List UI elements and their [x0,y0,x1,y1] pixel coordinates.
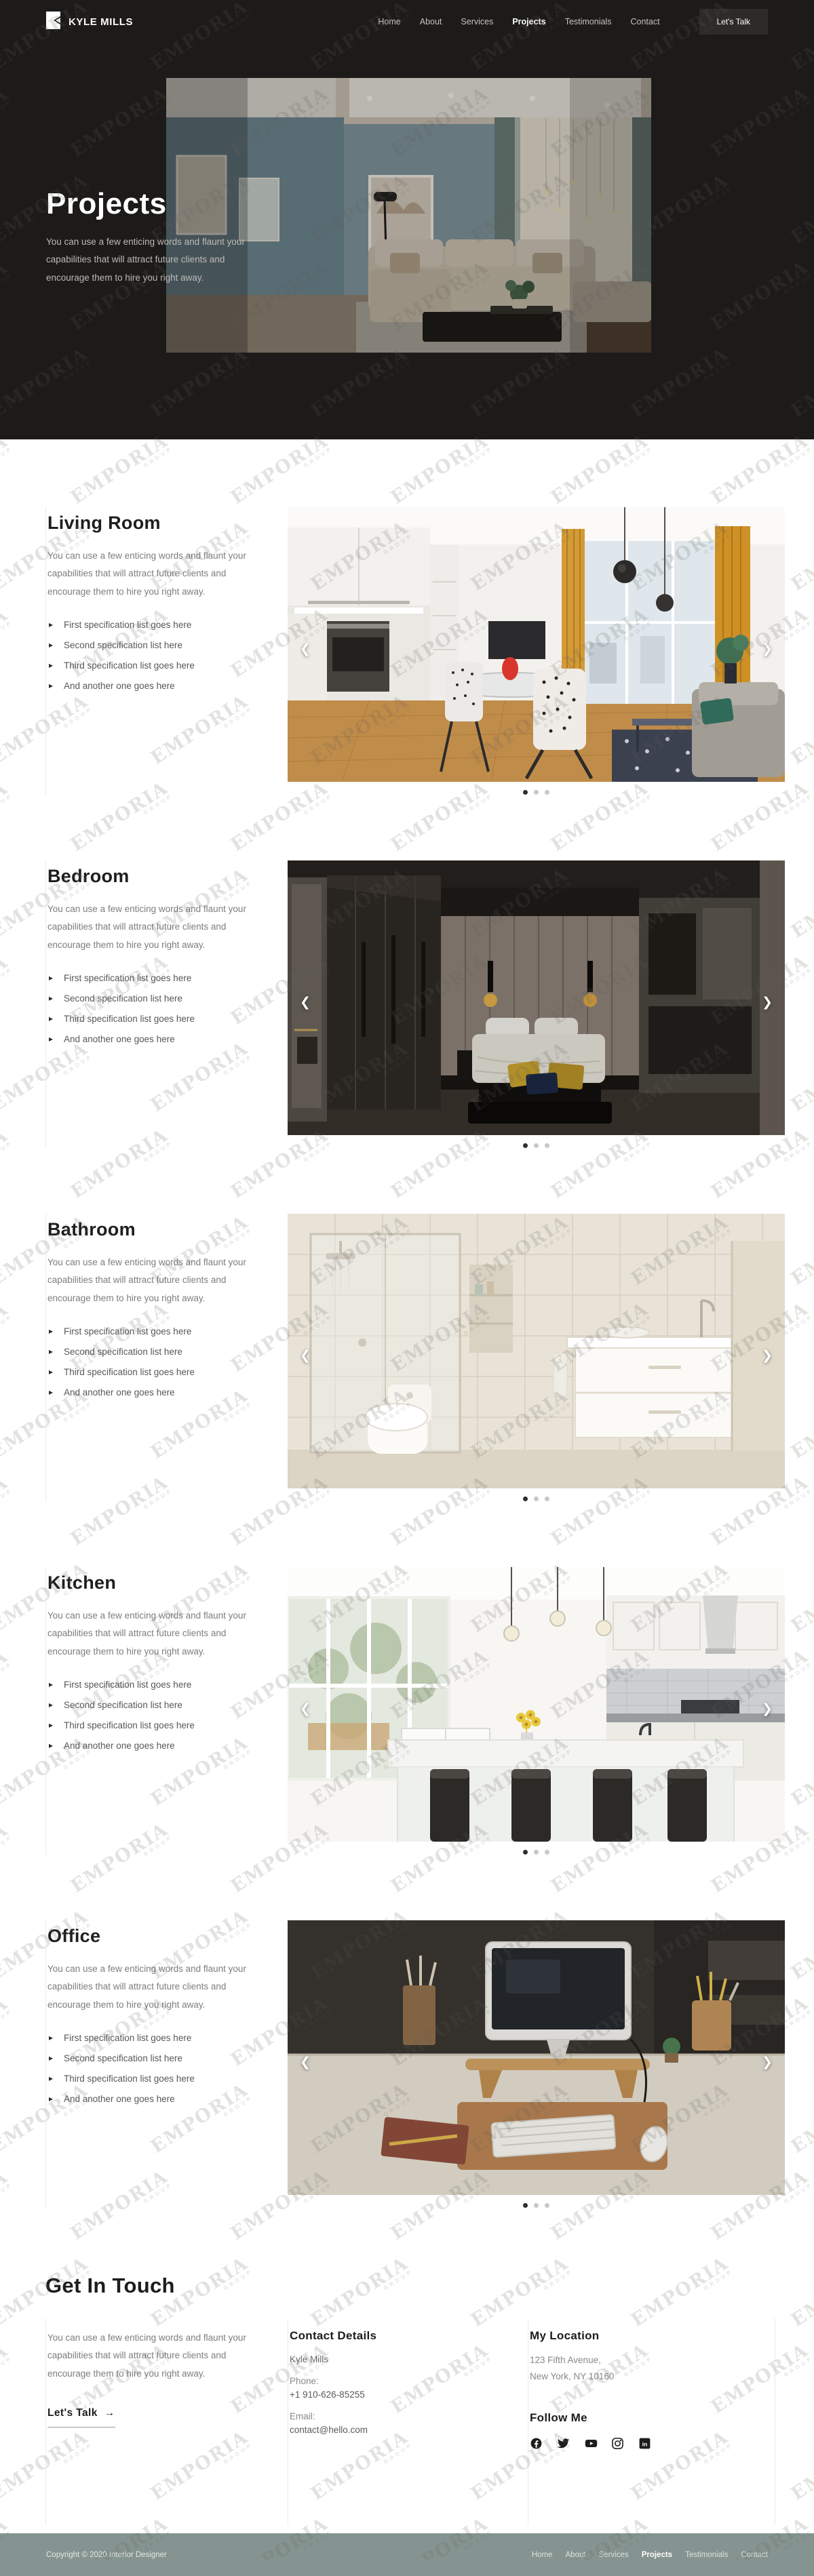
section-description: You can use a few enticing words and fla… [47,1960,262,2014]
spec-item: First specification list goes here [47,2033,262,2043]
carousel-dot[interactable] [534,1850,539,1855]
carousel-dot[interactable] [523,790,528,795]
project-info: Office You can use a few enticing words … [45,1920,288,2208]
living-room-carousel: ❮ ❯ [288,507,785,795]
phone-number[interactable]: +1 910-626-85255 [290,2390,507,2400]
nav-contact[interactable]: Contact [630,17,659,26]
carousel-dots [288,2203,785,2208]
lets-talk-button[interactable]: Let's Talk [699,9,768,35]
contact-name: Kyle Mills [290,2354,507,2364]
project-info: Living Room You can use a few enticing w… [45,507,288,795]
spec-item: Third specification list goes here [47,1367,262,1377]
bedroom-photo [288,860,785,1135]
instagram-icon[interactable] [611,2437,624,2450]
contact-intro-column: You can use a few enticing words and fla… [45,2318,288,2525]
bathroom-photo [288,1214,785,1488]
site-footer: Copyright © 2020 Interior Designer Home … [0,2533,814,2576]
carousel-dot[interactable] [523,1497,528,1501]
spec-item: Second specification list here [47,993,262,1004]
nav-testimonials[interactable]: Testimonials [565,17,612,26]
contact-heading: Get In Touch [45,2274,775,2298]
office-carousel: ❮ ❯ [288,1920,785,2208]
footer-nav-projects[interactable]: Projects [642,2551,672,2559]
carousel-dot[interactable] [534,1143,539,1148]
bathroom-carousel: ❮ ❯ [288,1214,785,1501]
carousel-dot[interactable] [545,2203,549,2208]
hero-section: Projects You can use a few enticing word… [0,43,814,439]
main-nav: Home About Services Projects Testimonial… [378,9,768,35]
spec-list: First specification list goes here Secon… [47,973,262,1044]
carousel-dot[interactable] [545,1143,549,1148]
copyright-text: Copyright © 2020 Interior Designer [46,2551,167,2559]
carousel-dots [288,1497,785,1501]
carousel-prev-button[interactable]: ❮ [297,993,313,1012]
spec-item: And another one goes here [47,1034,262,1044]
carousel-dot[interactable] [545,1497,549,1501]
section-title: Living Room [47,513,262,534]
carousel-prev-button[interactable]: ❮ [297,2053,313,2072]
twitter-icon[interactable] [557,2437,570,2450]
nav-services[interactable]: Services [461,17,493,26]
project-info: Bedroom You can use a few enticing words… [45,860,288,1148]
email-label: Email: [290,2411,507,2421]
carousel-next-button[interactable]: ❯ [759,1347,775,1365]
youtube-icon[interactable] [584,2437,597,2450]
section-description: You can use a few enticing words and fla… [47,547,262,601]
email-address[interactable]: contact@hello.com [290,2425,507,2435]
spec-item: Second specification list here [47,2053,262,2063]
hero-description: You can use a few enticing words and fla… [46,233,256,287]
footer-nav: Home About Services Projects Testimonial… [532,2551,768,2559]
carousel-dot[interactable] [534,1497,539,1501]
address-line-1: 123 Fifth Avenue, [530,2352,754,2369]
get-in-touch-section: Get In Touch You can use a few enticing … [45,2274,775,2525]
carousel-dots [288,1143,785,1148]
spec-item: And another one goes here [47,1741,262,1751]
carousel-dot[interactable] [534,2203,539,2208]
spec-item: First specification list goes here [47,973,262,983]
carousel-dot[interactable] [523,2203,528,2208]
project-info: Kitchen You can use a few enticing words… [45,1567,288,1855]
location-heading: My Location [530,2329,754,2343]
hero-text-block: Projects You can use a few enticing word… [46,187,256,287]
section-description: You can use a few enticing words and fla… [47,1607,262,1661]
kitchen-photo [288,1567,785,1842]
lets-talk-link[interactable]: Let's Talk→ [47,2407,115,2428]
brand-name: KYLE MILLS [69,16,133,28]
office-photo [288,1920,785,2195]
svg-text:in: in [642,2441,648,2448]
phone-label: Phone: [290,2376,507,2386]
facebook-icon[interactable] [530,2437,543,2450]
spec-item: Third specification list goes here [47,660,262,671]
carousel-dots [288,1850,785,1855]
brand-logo-icon [46,12,62,33]
project-section-kitchen: Kitchen You can use a few enticing words… [45,1567,785,1855]
carousel-dots [288,790,785,795]
carousel-prev-button[interactable]: ❮ [297,1700,313,1718]
spec-item: Second specification list here [47,1347,262,1357]
carousel-next-button[interactable]: ❯ [759,640,775,658]
spec-list: First specification list goes here Secon… [47,2033,262,2104]
project-section-living-room: Living Room You can use a few enticing w… [45,507,785,795]
carousel-dot[interactable] [545,1850,549,1855]
arrow-right-icon: → [104,2407,115,2419]
carousel-prev-button[interactable]: ❮ [297,1347,313,1365]
spec-item: First specification list goes here [47,620,262,630]
footer-nav-services[interactable]: Services [599,2551,629,2559]
spec-item: And another one goes here [47,1387,262,1398]
carousel-next-button[interactable]: ❯ [759,1700,775,1718]
brand-logo[interactable]: KYLE MILLS [46,12,133,33]
site-header: KYLE MILLS Home About Services Projects … [0,0,814,43]
project-info: Bathroom You can use a few enticing word… [45,1214,288,1501]
footer-nav-about[interactable]: About [566,2551,586,2559]
carousel-next-button[interactable]: ❯ [759,2053,775,2072]
spec-item: Third specification list goes here [47,1014,262,1024]
contact-details-heading: Contact Details [290,2329,507,2343]
contact-details-column: Contact Details Kyle Mills Phone: +1 910… [288,2318,528,2525]
carousel-dot[interactable] [523,1850,528,1855]
section-title: Kitchen [47,1572,262,1593]
page-title: Projects [46,187,256,221]
contact-description: You can use a few enticing words and fla… [47,2329,258,2383]
carousel-prev-button[interactable]: ❮ [297,640,313,658]
follow-me-heading: Follow Me [530,2411,754,2425]
nav-home[interactable]: Home [378,17,400,26]
project-section-office: Office You can use a few enticing words … [45,1920,785,2208]
spec-item: First specification list goes here [47,1326,262,1336]
location-column: My Location 123 Fifth Avenue, New York, … [528,2318,775,2525]
social-links: in [530,2437,754,2450]
section-description: You can use a few enticing words and fla… [47,1254,262,1307]
linkedin-icon[interactable]: in [638,2437,651,2450]
spec-item: And another one goes here [47,681,262,691]
spec-item: Second specification list here [47,640,262,650]
section-title: Bathroom [47,1219,262,1240]
spec-item: First specification list goes here [47,1680,262,1690]
project-section-bathroom: Bathroom You can use a few enticing word… [45,1214,785,1501]
spec-item: Second specification list here [47,1700,262,1710]
carousel-dot[interactable] [523,1143,528,1148]
bedroom-carousel: ❮ ❯ [288,860,785,1148]
project-section-bedroom: Bedroom You can use a few enticing words… [45,860,785,1148]
spec-list: First specification list goes here Secon… [47,620,262,691]
footer-nav-contact[interactable]: Contact [741,2551,768,2559]
footer-nav-testimonials[interactable]: Testimonials [685,2551,728,2559]
kitchen-carousel: ❮ ❯ [288,1567,785,1855]
nav-projects[interactable]: Projects [512,17,545,26]
spec-list: First specification list goes here Secon… [47,1680,262,1751]
section-description: You can use a few enticing words and fla… [47,900,262,954]
section-title: Office [47,1926,262,1947]
address-line-2: New York, NY 10160 [530,2369,754,2385]
carousel-dot[interactable] [534,790,539,795]
spec-item: Third specification list goes here [47,2074,262,2084]
footer-nav-home[interactable]: Home [532,2551,553,2559]
lets-talk-label: Let's Talk [47,2407,98,2419]
section-title: Bedroom [47,866,262,887]
spec-item: Third specification list goes here [47,1720,262,1730]
projects-main: Living Room You can use a few enticing w… [0,439,814,2525]
spec-item: And another one goes here [47,2094,262,2104]
carousel-next-button[interactable]: ❯ [759,993,775,1012]
nav-about[interactable]: About [420,17,442,26]
carousel-dot[interactable] [545,790,549,795]
living-room-photo [288,507,785,782]
spec-list: First specification list goes here Secon… [47,1326,262,1398]
